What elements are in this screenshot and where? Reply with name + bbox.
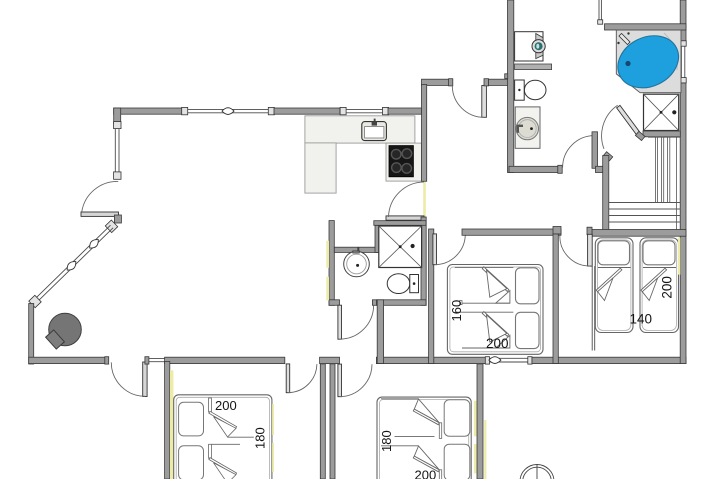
svg-text:200: 200	[415, 468, 437, 479]
svg-text:200: 200	[215, 398, 237, 413]
svg-text:200: 200	[486, 336, 509, 351]
svg-text:160: 160	[449, 300, 464, 322]
svg-text:180: 180	[379, 430, 394, 452]
svg-text:140: 140	[630, 312, 653, 327]
svg-text:180: 180	[253, 427, 268, 449]
svg-text:200: 200	[660, 276, 675, 299]
